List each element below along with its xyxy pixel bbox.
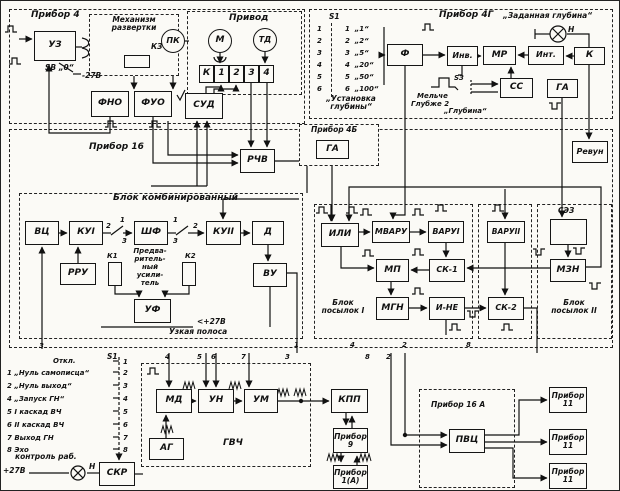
pulse-icon bbox=[412, 209, 424, 215]
burst-icon bbox=[183, 382, 195, 389]
glubina-label: „Глубина“ bbox=[444, 107, 487, 115]
mvaru-block: МВАРУ bbox=[372, 221, 410, 243]
mgn-block: МГН bbox=[376, 297, 409, 320]
terminal-num: 8 bbox=[365, 353, 370, 361]
control-contact: 6 bbox=[123, 421, 128, 429]
melche-label: Мельче bbox=[417, 92, 448, 100]
sk2-block: СК-2 bbox=[488, 297, 524, 320]
control-s1-label: S1 bbox=[107, 353, 118, 361]
depth-set-label: „Установкаглубины“ bbox=[311, 95, 391, 112]
mzn-block: МЗН bbox=[550, 259, 586, 282]
pulse-icon bbox=[589, 283, 601, 289]
ag-block: АГ bbox=[149, 438, 184, 460]
pk-block: ПК bbox=[161, 29, 185, 53]
rchv-block: РЧВ bbox=[240, 149, 275, 173]
uz-block: УЗ bbox=[34, 31, 76, 61]
sk1-block: СК-1 bbox=[429, 259, 465, 282]
k-block: К bbox=[574, 47, 605, 65]
terminal-num: 1 bbox=[294, 341, 299, 349]
pulse-icon bbox=[412, 288, 424, 294]
s3-label: S3 bbox=[454, 74, 464, 82]
burst-icon bbox=[294, 389, 306, 396]
terminal-cell: 2 bbox=[229, 65, 244, 83]
pulse-icon bbox=[9, 58, 21, 64]
md-block: МД bbox=[156, 389, 192, 413]
pulse-icon bbox=[549, 103, 561, 109]
device1a-block: Прибор1(А) bbox=[333, 465, 368, 489]
control-row: 2 „Нуль выход“ bbox=[7, 382, 71, 390]
un-block: УН bbox=[198, 389, 234, 413]
shf-block: ШФ bbox=[134, 221, 168, 245]
plus27v-bottom-label: +27В bbox=[3, 467, 25, 475]
control-row: 6 II каскад ВЧ bbox=[7, 421, 64, 429]
pulse-icon bbox=[422, 24, 434, 30]
motor-block: М bbox=[208, 29, 232, 53]
otkl-label: Откл. bbox=[53, 357, 76, 365]
ga-4g-block: ГА bbox=[547, 79, 578, 98]
fuo-block: ФУО bbox=[134, 91, 172, 117]
terminal-cell: К bbox=[199, 65, 214, 83]
set-depth-lamp-label: „Заданная глубина“ bbox=[503, 12, 592, 20]
terminal-num: 6 bbox=[211, 353, 216, 361]
sweep-mech-title: Механизм развертки bbox=[93, 16, 175, 33]
revun-block: Ревун bbox=[572, 141, 608, 163]
k2-relay bbox=[182, 262, 196, 286]
terminal-cell: 4 bbox=[259, 65, 274, 83]
varu2-block: ВАРУII bbox=[487, 221, 525, 243]
pulse-icon bbox=[449, 324, 461, 330]
pulse-icon bbox=[105, 121, 117, 127]
terminal-num: 2 bbox=[386, 353, 391, 361]
pulse-icon bbox=[573, 248, 585, 254]
skr-block: СКР bbox=[99, 462, 135, 486]
device11-block: Прибор11 bbox=[549, 463, 587, 489]
device16a-title: Прибор 16 А bbox=[431, 401, 485, 409]
contact-num: 2 bbox=[106, 222, 111, 230]
control-contact: 8 bbox=[123, 446, 128, 454]
terminal-num: 2 bbox=[402, 341, 407, 349]
combined-title: Блок комбинированный bbox=[113, 194, 238, 204]
drive-title: Привод bbox=[229, 14, 268, 24]
contact-num: 1 bbox=[173, 216, 178, 224]
control-contact: 2 bbox=[123, 369, 128, 377]
uf-block: УФ bbox=[134, 299, 171, 323]
terminal-cell: 3 bbox=[244, 65, 259, 83]
ku1-block: КУI bbox=[69, 221, 103, 245]
burst-block2-title: Блокпосылок II bbox=[545, 299, 603, 316]
pulse-icon bbox=[5, 26, 17, 32]
terminal-num: 5 bbox=[197, 353, 202, 361]
k2-label: К2 bbox=[185, 252, 196, 260]
terminal-cell: 1 bbox=[214, 65, 229, 83]
kontrol-label: контроль раб. bbox=[15, 453, 77, 461]
preamp-label: Предва-ритель- ныйусили- тель bbox=[128, 247, 172, 287]
control-contact: 5 bbox=[123, 408, 128, 416]
pulse-icon bbox=[362, 250, 374, 256]
kz-block bbox=[124, 55, 150, 68]
rru-block: РРУ bbox=[60, 263, 96, 285]
td-block: ТД bbox=[253, 28, 277, 52]
control-row: 5 I каскад ВЧ bbox=[7, 408, 62, 416]
d-block: Д bbox=[252, 221, 284, 245]
control-row: 7 Выход ГН bbox=[7, 434, 54, 442]
terminal-num: 8 bbox=[466, 341, 471, 349]
sb-switch-label: SВ „0“ bbox=[45, 64, 74, 72]
pulse-icon bbox=[149, 121, 161, 127]
control-contact: 4 bbox=[123, 395, 128, 403]
device11-block: Прибор11 bbox=[549, 387, 587, 413]
ine-block: И-НЕ bbox=[429, 297, 465, 320]
kz-label: КЗ bbox=[151, 43, 162, 51]
burst-icon bbox=[161, 426, 173, 433]
narrow-band-label: Узкая полоса bbox=[169, 328, 227, 336]
s1-contact-num: 3 bbox=[317, 49, 322, 57]
device4b-title: Прибор 4Б bbox=[311, 126, 357, 134]
ili-block: ИЛИ bbox=[321, 223, 359, 247]
pvc-block: ПВЦ bbox=[449, 429, 485, 453]
fno-block: ФНО bbox=[91, 91, 129, 117]
device4-title: Прибор 4 bbox=[31, 11, 80, 21]
ga-4b-block: ГА bbox=[316, 140, 349, 159]
pulse-icon bbox=[147, 368, 159, 374]
contact-num: 3 bbox=[122, 237, 127, 245]
control-contact: 3 bbox=[123, 382, 128, 390]
device11-block: Прибор11 bbox=[549, 429, 587, 455]
s1-contact-num: 4 bbox=[317, 61, 322, 69]
control-contact: 7 bbox=[123, 434, 128, 442]
device9-block: Прибор9 bbox=[333, 428, 368, 453]
burst-icon bbox=[327, 454, 339, 461]
f-block: Ф bbox=[387, 44, 423, 66]
gvch-title: ГВЧ bbox=[223, 439, 243, 449]
int-block: Инт. bbox=[528, 46, 564, 65]
k1-label: К1 bbox=[107, 252, 118, 260]
burst-icon bbox=[277, 389, 289, 396]
otkl-contact: 1 bbox=[123, 358, 128, 366]
um-block: УМ bbox=[244, 389, 278, 413]
terminal-num: 7 bbox=[241, 353, 246, 361]
lamp-n-bottom: Н bbox=[89, 463, 95, 471]
mr-block: МР bbox=[483, 46, 516, 65]
mp-block: МП bbox=[376, 259, 409, 282]
contact-num: 3 bbox=[173, 237, 178, 245]
vu-block: ВУ bbox=[253, 263, 287, 287]
lamp-n-label: Н bbox=[568, 26, 574, 34]
burst-icon bbox=[359, 454, 371, 461]
contact-num: 2 bbox=[193, 222, 198, 230]
pulse-icon bbox=[346, 207, 358, 213]
sez-block bbox=[550, 219, 587, 245]
ss-block: СС bbox=[500, 78, 533, 98]
minus27v-label: -27В bbox=[82, 72, 101, 80]
pulse-icon bbox=[435, 205, 447, 211]
kpp-block: КПП bbox=[331, 389, 368, 413]
device4g-title: Прибор 4Г bbox=[439, 11, 493, 21]
pulse-icon bbox=[412, 249, 424, 255]
sud-block: СУД bbox=[185, 93, 223, 119]
schematic-diagram: Прибор 4 УЗ SВ „0“ -27В Механизм разверт… bbox=[0, 0, 620, 491]
varu1-block: ВАРУI bbox=[428, 221, 464, 243]
plus27v-label: <+27В bbox=[197, 318, 226, 326]
s1-contact-num: 2 bbox=[317, 37, 322, 45]
terminal-num: 3 bbox=[39, 342, 44, 350]
pulse-icon bbox=[467, 311, 479, 317]
pulse-icon bbox=[492, 205, 504, 211]
contact-num: 1 bbox=[120, 216, 125, 224]
inv-block: Инв. bbox=[447, 46, 478, 66]
pulse-icon bbox=[360, 209, 372, 215]
s1-contact-num: 1 bbox=[317, 25, 322, 33]
k1-relay bbox=[108, 262, 122, 286]
pulse-icon bbox=[501, 324, 513, 330]
device16-title: Прибор 16 bbox=[89, 143, 144, 153]
terminal-num: 4 bbox=[350, 341, 355, 349]
terminal-strip: К 1 2 3 4 bbox=[199, 65, 274, 83]
pulse-icon bbox=[316, 207, 328, 213]
s1-contact-num: 6 bbox=[317, 85, 322, 93]
burst-icon bbox=[229, 382, 241, 389]
sez-label: СЭЗ bbox=[558, 207, 574, 215]
vc-block: ВЦ bbox=[25, 221, 59, 245]
pulse-icon bbox=[533, 249, 545, 255]
control-row: 4 „Запуск ГН“ bbox=[7, 395, 64, 403]
burst-block1-title: Блокпосылок I bbox=[317, 299, 369, 316]
s1-contact-num: 5 bbox=[317, 73, 322, 81]
terminal-num: 4 bbox=[165, 353, 170, 361]
control-row: 1 „Нуль самописца“ bbox=[7, 369, 89, 377]
s1-label: S1 bbox=[329, 13, 340, 21]
ku2-block: КУII bbox=[206, 221, 241, 245]
terminal-num: 3 bbox=[285, 353, 290, 361]
s1-wiper bbox=[331, 23, 332, 97]
